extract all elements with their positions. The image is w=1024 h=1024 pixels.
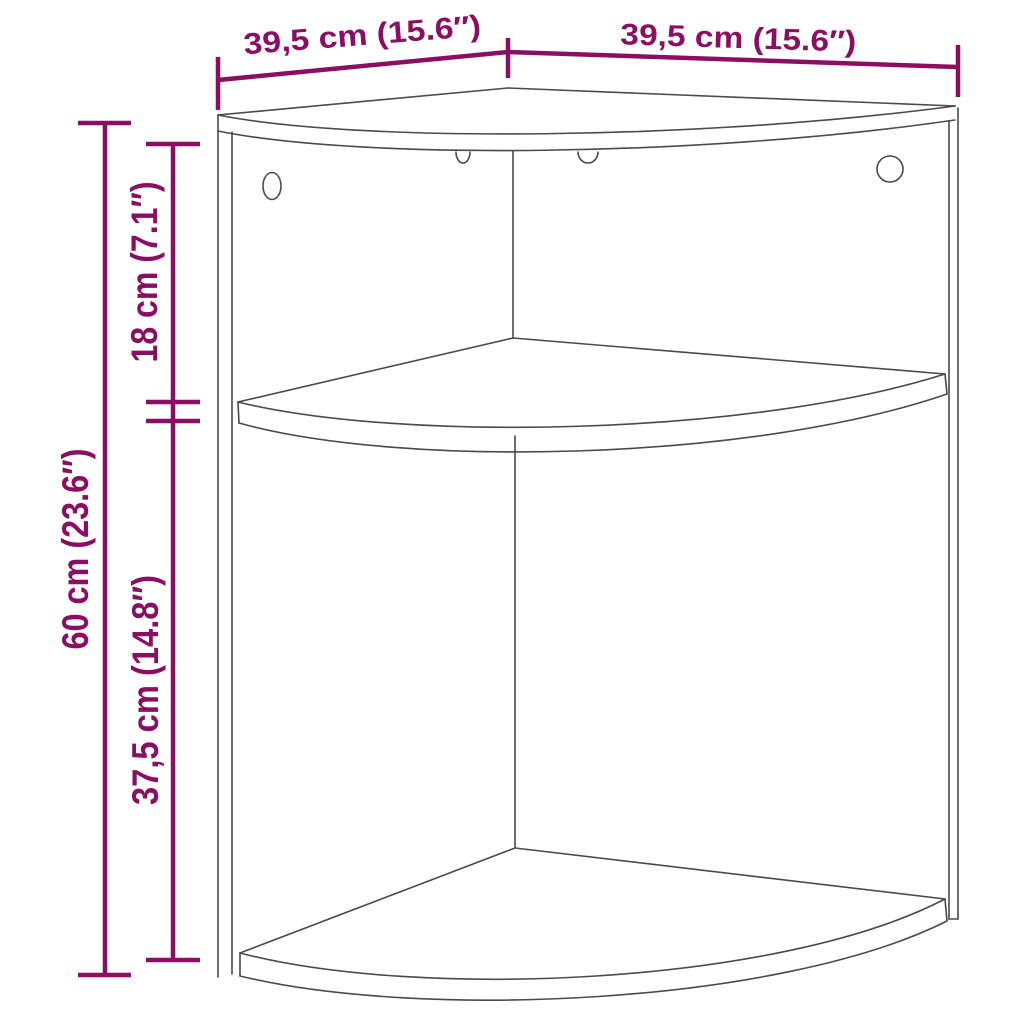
middle-shelf-back-edges <box>238 338 945 402</box>
section-bottom-label: 37,5 cm (14.8″) <box>125 575 166 805</box>
bottom-shelf-front-edge <box>240 899 945 979</box>
left-panel <box>218 115 232 977</box>
diagram-svg: 39,5 cm (15.6″) 39,5 cm (15.6″) 60 cm (2… <box>0 0 1024 1024</box>
middle-shelf <box>238 338 947 452</box>
mounting-hole-left <box>263 173 281 200</box>
middle-shelf-left-end <box>238 402 239 423</box>
top-panel-back-edges <box>218 88 955 115</box>
height-total-label: 60 cm (23.6″) <box>55 449 96 650</box>
product-dimension-diagram: 39,5 cm (15.6″) 39,5 cm (15.6″) 60 cm (2… <box>0 0 1024 1024</box>
width-left-label: 39,5 cm (15.6″) <box>242 10 482 62</box>
bottom-shelf-band-bottom <box>240 921 947 1000</box>
mounting-hole-right <box>877 156 903 182</box>
right-panel <box>949 108 958 919</box>
cabinet-drawing <box>218 88 958 1000</box>
bottom-shelf-back-edges <box>240 848 945 953</box>
mounting-hole-center-left <box>456 152 470 163</box>
width-right-label: 39,5 cm (15.6″) <box>620 18 857 58</box>
bottom-shelf-right-end <box>945 899 947 921</box>
section-top-label: 18 cm (7.1″) <box>124 182 165 363</box>
top-panel-front-edge <box>218 106 955 134</box>
dimension-width-top: 39,5 cm (15.6″) 39,5 cm (15.6″) <box>218 10 958 110</box>
corner-junction <box>513 151 515 848</box>
dimension-annotations: 39,5 cm (15.6″) 39,5 cm (15.6″) 60 cm (2… <box>55 10 958 975</box>
mounting-hole-center-right <box>578 152 598 163</box>
middle-shelf-front-edge <box>238 374 945 427</box>
middle-shelf-right-end <box>945 374 947 394</box>
mounting-holes <box>263 152 903 200</box>
dimension-sections: 18 cm (7.1″) 37,5 cm (14.8″) <box>124 144 200 960</box>
top-panel-band-bottom <box>218 120 955 151</box>
top-panel <box>218 88 955 151</box>
middle-shelf-band-bottom <box>239 394 947 452</box>
bottom-shelf <box>240 848 947 1000</box>
dimension-height-total: 60 cm (23.6″) <box>55 123 131 975</box>
